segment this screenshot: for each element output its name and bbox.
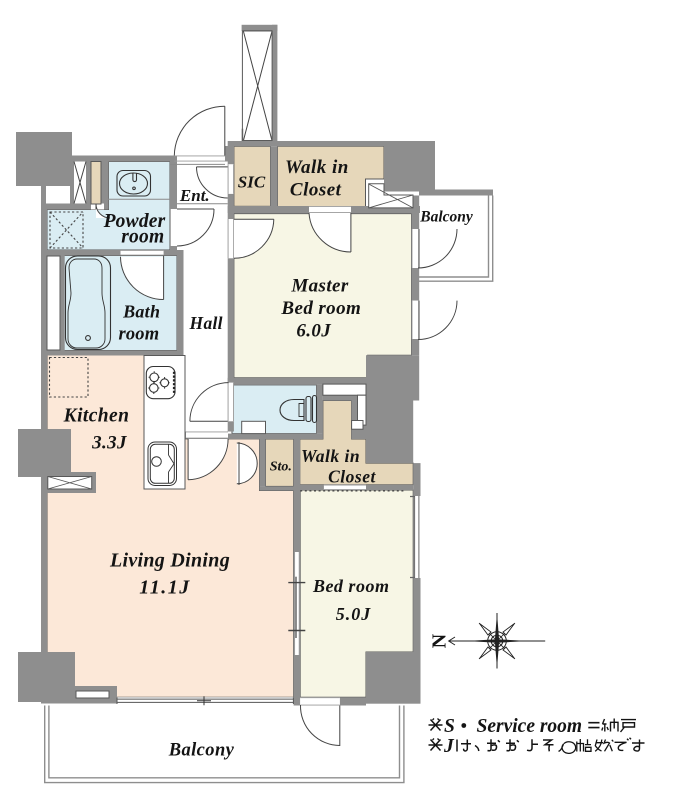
svg-text:Sto.: Sto. <box>270 460 292 475</box>
svg-text:S: S <box>444 716 455 737</box>
svg-text:J: J <box>443 736 455 757</box>
svg-text:Walk in: Walk in <box>301 446 360 466</box>
svg-text:N: N <box>429 633 451 648</box>
svg-text:Bath: Bath <box>122 302 160 322</box>
svg-text:Balcony: Balcony <box>419 209 473 226</box>
svg-text:Closet: Closet <box>328 467 376 487</box>
svg-text:Hall: Hall <box>189 313 223 333</box>
svg-text:Walk in: Walk in <box>285 157 349 178</box>
svg-text:11.1J: 11.1J <box>139 577 190 599</box>
svg-text:Master: Master <box>290 276 348 297</box>
svg-text:Kitchen: Kitchen <box>63 406 130 427</box>
svg-text:Closet: Closet <box>290 180 342 201</box>
svg-text:Bed room: Bed room <box>312 576 390 596</box>
svg-text:Bed room: Bed room <box>280 298 361 319</box>
svg-text:3.3J: 3.3J <box>91 433 127 454</box>
svg-text:6.0J: 6.0J <box>296 321 331 342</box>
svg-text:5.0J: 5.0J <box>336 604 372 624</box>
svg-text:Balcony: Balcony <box>168 740 235 760</box>
svg-text:Ent.: Ent. <box>179 186 210 205</box>
svg-text:room: room <box>118 325 159 345</box>
svg-text:Service room: Service room <box>477 716 583 737</box>
svg-text:Living Dining: Living Dining <box>109 550 230 572</box>
svg-text:room: room <box>121 226 164 247</box>
svg-text:SIC: SIC <box>238 173 266 192</box>
